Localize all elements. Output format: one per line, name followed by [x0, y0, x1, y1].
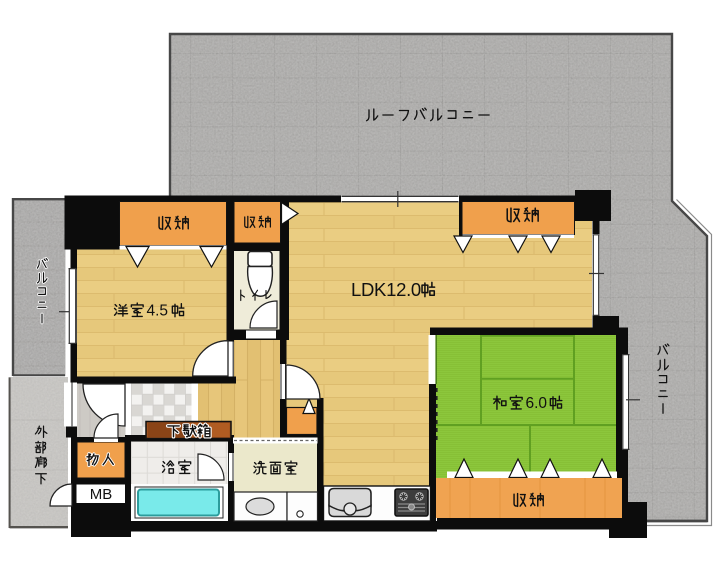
- svg-text:MB: MB: [90, 486, 113, 503]
- svg-text:4.5: 4.5: [147, 303, 169, 320]
- svg-text:LDK12.0: LDK12.0: [351, 279, 421, 300]
- svg-text:6.0: 6.0: [526, 395, 548, 412]
